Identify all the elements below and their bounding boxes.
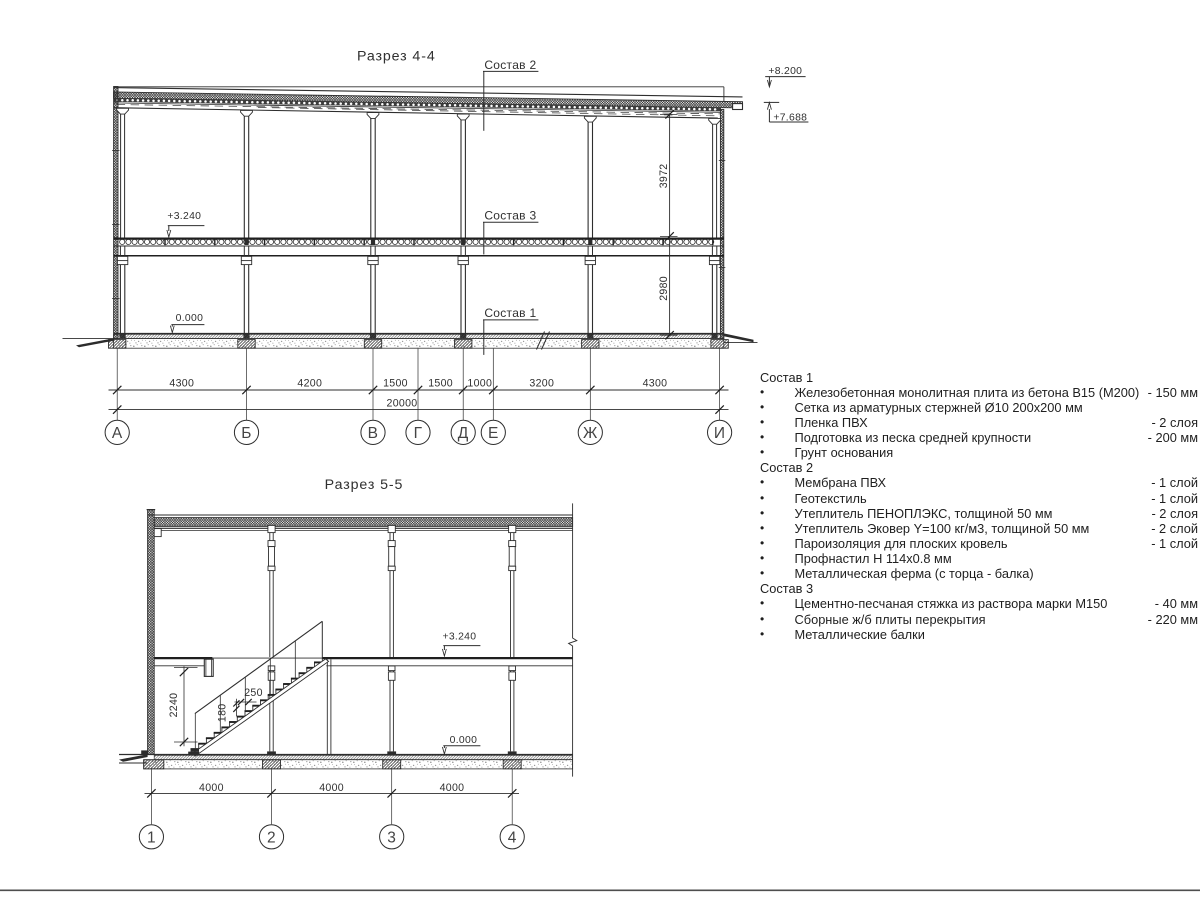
- svg-text:Разрез 4-4: Разрез 4-4: [357, 49, 436, 65]
- svg-text:Ж: Ж: [583, 425, 598, 442]
- svg-text:2240: 2240: [168, 693, 180, 718]
- svg-text:4200: 4200: [297, 378, 322, 390]
- svg-text:4300: 4300: [643, 378, 668, 390]
- svg-text:Е: Е: [488, 425, 499, 442]
- svg-text:3: 3: [387, 829, 396, 846]
- svg-text:0.000: 0.000: [450, 735, 478, 746]
- svg-text:Разрез 5-5: Разрез 5-5: [325, 477, 404, 493]
- svg-text:В: В: [368, 425, 379, 442]
- svg-text:4: 4: [508, 829, 517, 846]
- svg-text:Д: Д: [458, 425, 469, 442]
- svg-text:2980: 2980: [658, 276, 670, 301]
- svg-text:1500: 1500: [428, 378, 453, 390]
- svg-text:Состав 1: Состав 1: [484, 306, 536, 320]
- svg-text:+7.688: +7.688: [773, 113, 807, 124]
- svg-text:2: 2: [267, 829, 276, 846]
- svg-text:4000: 4000: [199, 782, 224, 794]
- svg-text:Состав 2: Состав 2: [484, 58, 536, 72]
- svg-text:Состав 3: Состав 3: [484, 208, 536, 222]
- svg-text:А: А: [112, 425, 123, 442]
- svg-text:+3.240: +3.240: [442, 632, 476, 643]
- svg-text:4000: 4000: [440, 782, 465, 794]
- svg-text:И: И: [714, 425, 725, 442]
- svg-text:1: 1: [147, 829, 156, 846]
- svg-text:Б: Б: [241, 425, 251, 442]
- svg-text:+3.240: +3.240: [167, 211, 201, 222]
- svg-text:1000: 1000: [467, 378, 492, 390]
- svg-text:250: 250: [244, 687, 263, 699]
- svg-text:1500: 1500: [383, 378, 408, 390]
- svg-text:+8.200: +8.200: [768, 66, 802, 77]
- svg-text:180: 180: [216, 704, 228, 723]
- svg-text:Г: Г: [414, 425, 423, 442]
- svg-text:3200: 3200: [529, 378, 554, 390]
- svg-text:3972: 3972: [658, 164, 670, 189]
- svg-text:4300: 4300: [169, 378, 194, 390]
- svg-text:20000: 20000: [387, 397, 418, 409]
- svg-text:4000: 4000: [319, 782, 344, 794]
- svg-text:0.000: 0.000: [176, 313, 204, 324]
